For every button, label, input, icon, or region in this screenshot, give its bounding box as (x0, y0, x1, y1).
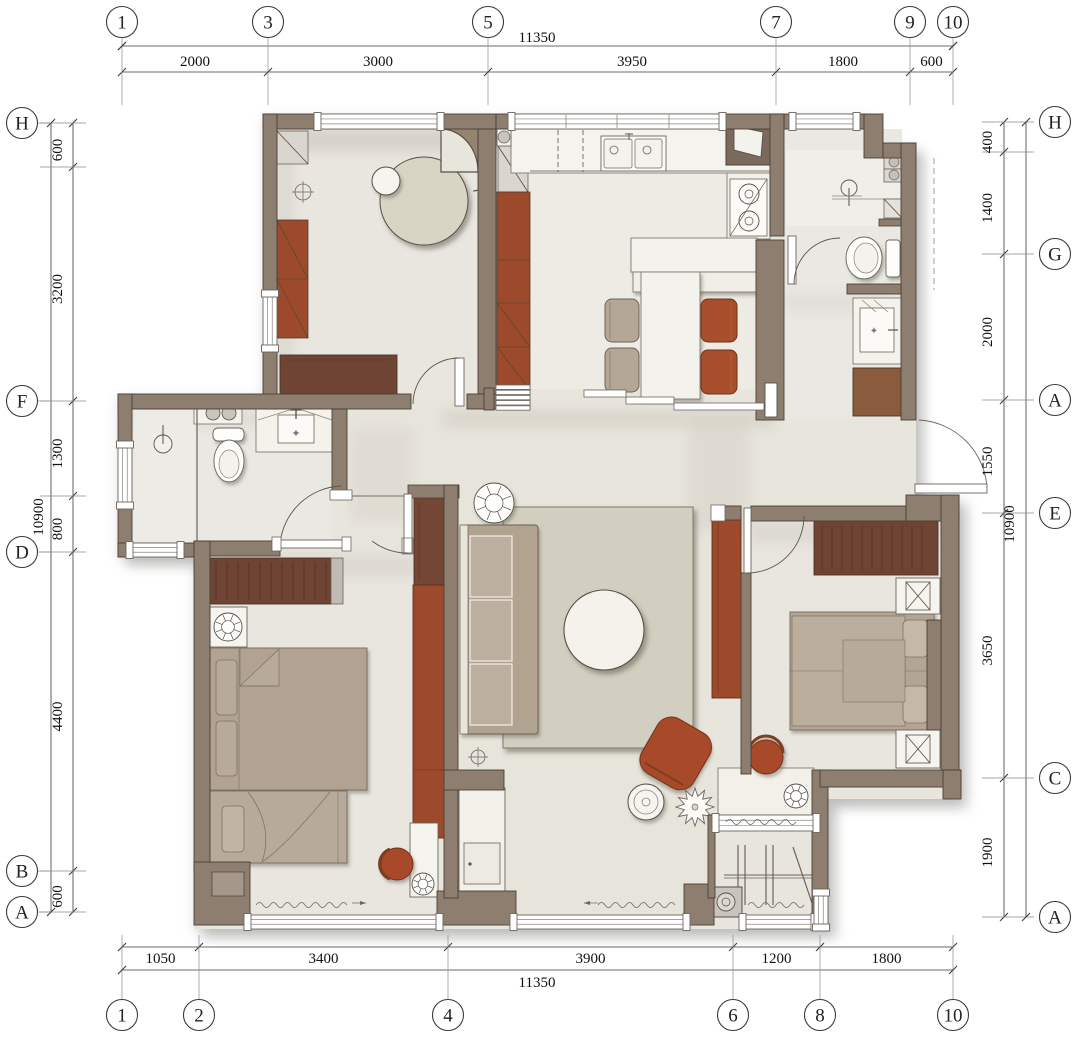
svg-text:10900: 10900 (1002, 505, 1018, 543)
svg-text:F: F (17, 392, 28, 413)
svg-text:11350: 11350 (519, 30, 556, 46)
svg-text:A: A (1048, 908, 1062, 929)
svg-text:600: 600 (50, 139, 66, 162)
svg-text:3000: 3000 (363, 54, 393, 70)
svg-text:400: 400 (980, 131, 996, 154)
svg-text:2: 2 (194, 1006, 204, 1027)
svg-text:1300: 1300 (50, 439, 66, 469)
svg-text:1900: 1900 (980, 838, 996, 868)
svg-text:✦: ✦ (870, 326, 878, 337)
svg-text:G: G (1048, 245, 1062, 266)
svg-text:H: H (15, 114, 29, 135)
svg-text:H: H (1048, 113, 1062, 134)
svg-text:3650: 3650 (980, 636, 996, 666)
svg-text:3200: 3200 (50, 274, 66, 304)
svg-text:3950: 3950 (617, 54, 647, 70)
svg-text:10: 10 (944, 13, 963, 34)
svg-text:C: C (1049, 769, 1062, 790)
svg-text:1200: 1200 (762, 951, 792, 967)
svg-text:E: E (1049, 504, 1061, 525)
svg-text:600: 600 (50, 885, 66, 908)
svg-text:2000: 2000 (980, 317, 996, 347)
svg-text:3: 3 (263, 13, 273, 34)
svg-text:9: 9 (905, 13, 915, 34)
svg-text:5: 5 (483, 13, 493, 34)
svg-text:3900: 3900 (576, 951, 606, 967)
svg-text:4: 4 (443, 1006, 453, 1027)
svg-text:A: A (1048, 391, 1062, 412)
svg-text:10: 10 (944, 1006, 963, 1027)
svg-text:✦: ✦ (291, 428, 300, 440)
svg-text:1050: 1050 (146, 951, 176, 967)
svg-text:1800: 1800 (828, 54, 858, 70)
svg-text:D: D (15, 543, 29, 564)
svg-text:B: B (16, 862, 29, 883)
svg-text:1: 1 (117, 13, 127, 34)
svg-text:4400: 4400 (50, 702, 66, 732)
svg-text:1800: 1800 (872, 951, 902, 967)
svg-text:600: 600 (920, 54, 943, 70)
svg-text:A: A (15, 903, 29, 924)
svg-text:1400: 1400 (980, 193, 996, 223)
svg-text:3400: 3400 (309, 951, 339, 967)
svg-text:1: 1 (117, 1006, 127, 1027)
svg-text:1550: 1550 (980, 447, 996, 477)
svg-text:2000: 2000 (180, 54, 210, 70)
svg-text:10900: 10900 (31, 498, 47, 536)
svg-text:11350: 11350 (519, 975, 556, 991)
svg-text:800: 800 (50, 518, 66, 541)
svg-text:7: 7 (771, 13, 781, 34)
svg-text:6: 6 (728, 1006, 738, 1027)
svg-text:8: 8 (815, 1006, 825, 1027)
